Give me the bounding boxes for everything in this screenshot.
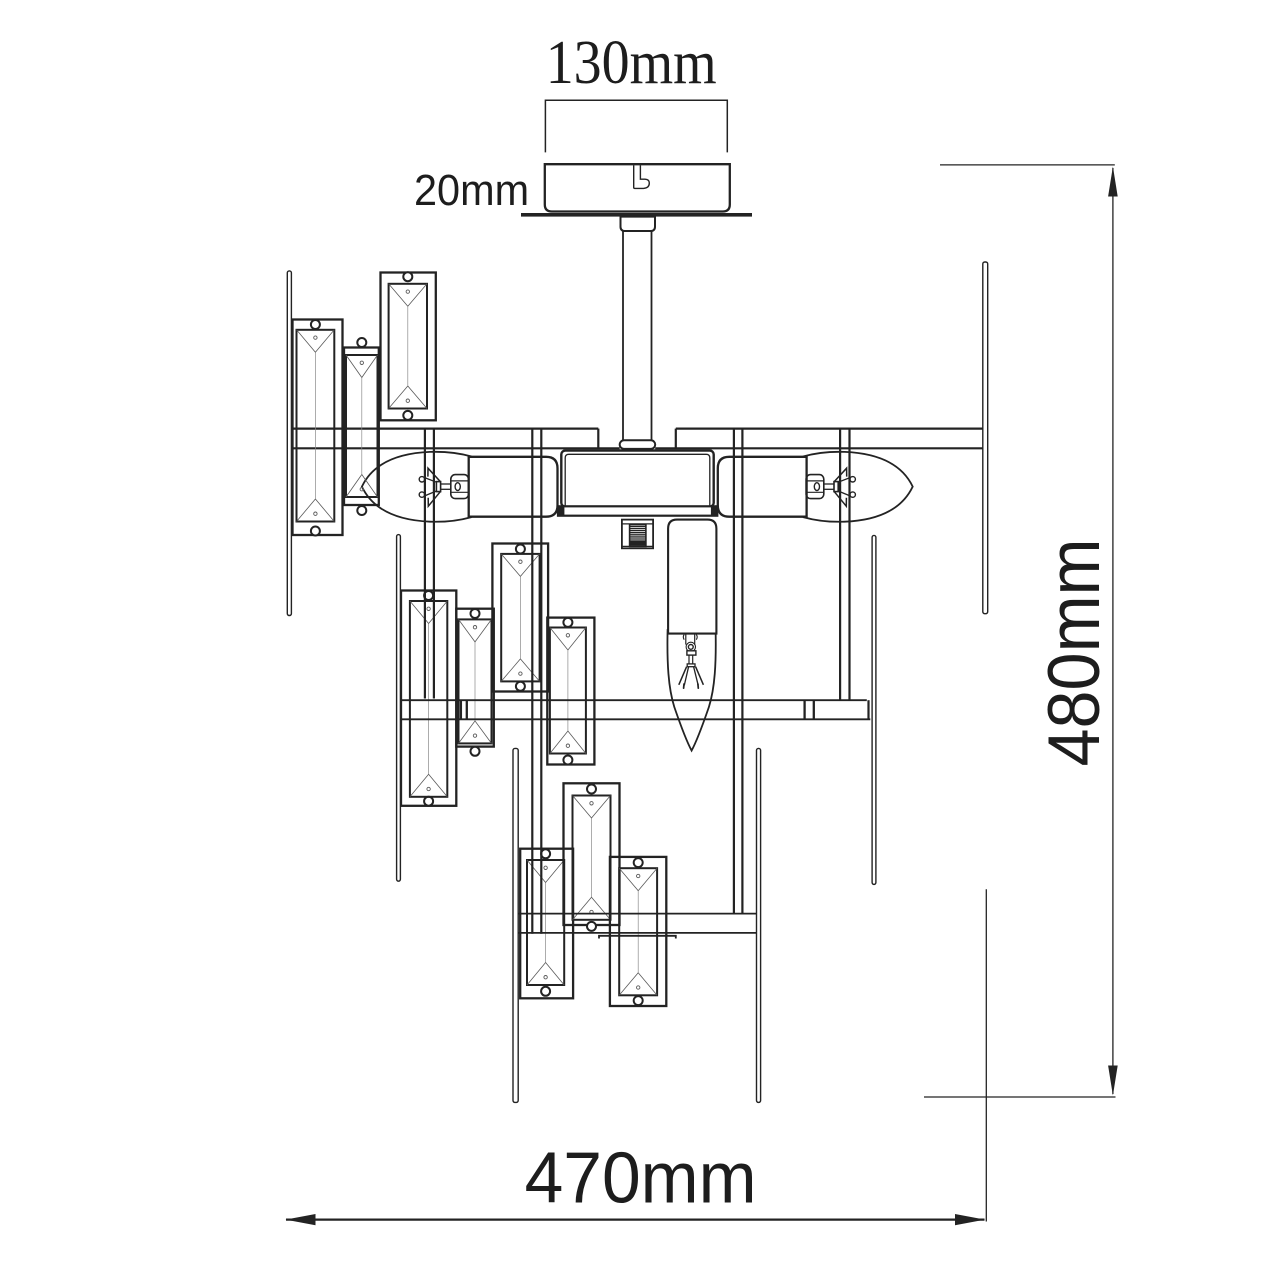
svg-text:20mm: 20mm — [414, 167, 529, 215]
svg-text:470mm: 470mm — [525, 1139, 757, 1219]
svg-text:480mm: 480mm — [1034, 539, 1115, 767]
svg-text:130mm: 130mm — [546, 29, 717, 97]
